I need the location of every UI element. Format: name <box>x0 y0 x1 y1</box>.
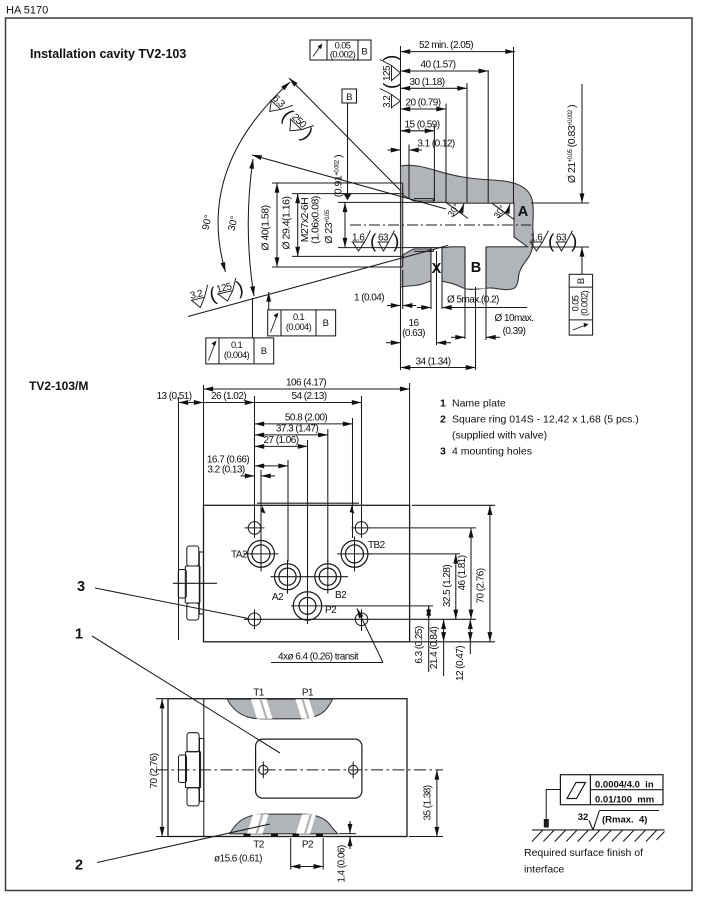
svg-text:B: B <box>361 47 367 58</box>
svg-text:30 (1.18): 30 (1.18) <box>409 77 444 88</box>
svg-text:P1: P1 <box>302 688 314 699</box>
svg-text:Ø 23+0.05: Ø 23+0.05 <box>323 209 335 244</box>
svg-text:0.1: 0.1 <box>231 340 243 350</box>
svg-text:70 (2.76): 70 (2.76) <box>476 568 487 603</box>
svg-text:20 (0.79): 20 (0.79) <box>405 98 440 109</box>
svg-text:106 (4.17): 106 (4.17) <box>286 378 326 389</box>
svg-text:0.1: 0.1 <box>293 312 305 322</box>
svg-text:12 (0.47): 12 (0.47) <box>455 646 466 681</box>
svg-text:3: 3 <box>77 579 85 595</box>
svg-text:1.4 (0.06): 1.4 (0.06) <box>337 845 348 883</box>
svg-text:32: 32 <box>578 812 589 823</box>
svg-text:3.2 (0.13): 3.2 (0.13) <box>207 464 245 475</box>
svg-text:54 (2.13): 54 (2.13) <box>291 391 326 402</box>
svg-text:6.3 (0.25): 6.3 (0.25) <box>414 626 425 664</box>
svg-text:B: B <box>471 260 481 276</box>
svg-text:3: 3 <box>440 446 446 458</box>
svg-text:Ø 5max.(0.2): Ø 5max.(0.2) <box>447 295 499 306</box>
svg-text:26 (1.02): 26 (1.02) <box>211 391 246 402</box>
svg-text:T1: T1 <box>253 688 265 699</box>
svg-text:(0.91+0.002 ): (0.91+0.002 ) <box>333 155 345 197</box>
svg-text:(0.002): (0.002) <box>580 290 590 316</box>
svg-text:3.1 (0.12): 3.1 (0.12) <box>417 139 455 150</box>
svg-text:B: B <box>346 92 352 103</box>
svg-text:TB2: TB2 <box>368 540 386 551</box>
svg-text:TV2-103/M: TV2-103/M <box>29 379 88 393</box>
svg-text:Ø 40(1.58): Ø 40(1.58) <box>260 205 272 250</box>
svg-text:): ) <box>235 278 246 300</box>
svg-text:interface: interface <box>524 864 564 876</box>
svg-text:T2: T2 <box>253 840 265 851</box>
svg-text:Installation cavity TV2-103: Installation cavity TV2-103 <box>30 47 186 61</box>
svg-text:(Rmax. 4): (Rmax. 4) <box>602 815 647 826</box>
svg-text:(: ( <box>381 82 402 89</box>
svg-text:0.01/100 mm: 0.01/100 mm <box>595 795 654 806</box>
svg-text:A: A <box>518 204 529 220</box>
svg-text:Ø 21+0.05 (0.83+0.002 ): Ø 21+0.05 (0.83+0.002 ) <box>566 105 578 183</box>
svg-text:): ) <box>393 232 399 253</box>
svg-text:B: B <box>576 278 587 284</box>
svg-text:2: 2 <box>440 414 446 426</box>
svg-text:52 min. (2.05): 52 min. (2.05) <box>419 40 473 51</box>
svg-text:Square ring 014S - 12,42 x 1,6: Square ring 014S - 12,42 x 1,68 (5 pcs.) <box>452 414 639 426</box>
svg-text:32.5 (1.28): 32.5 (1.28) <box>442 565 453 608</box>
svg-text:(0.63): (0.63) <box>402 328 425 339</box>
svg-text:70 (2.76): 70 (2.76) <box>149 753 160 788</box>
svg-text:Name plate: Name plate <box>452 398 506 410</box>
svg-text:1: 1 <box>440 398 446 410</box>
svg-text:P2: P2 <box>325 605 337 616</box>
svg-text:46 (1.81): 46 (1.81) <box>457 555 468 590</box>
svg-text:ø15.6 (0.61): ø15.6 (0.61) <box>214 854 262 865</box>
svg-text:(1.06x0.08): (1.06x0.08) <box>310 196 322 244</box>
svg-text:(0.39): (0.39) <box>503 326 526 337</box>
svg-text:HA 5170: HA 5170 <box>6 5 48 17</box>
svg-text:1 (0.04): 1 (0.04) <box>354 293 384 304</box>
svg-text:Ø 29.4(1.16): Ø 29.4(1.16) <box>281 197 293 250</box>
svg-text:35 (1.38): 35 (1.38) <box>423 785 434 820</box>
svg-text:30°: 30° <box>492 203 508 220</box>
svg-text:4xø 6.4 (0.26) transit: 4xø 6.4 (0.26) transit <box>278 652 359 663</box>
svg-text:0.0004/4.0 in: 0.0004/4.0 in <box>595 780 654 791</box>
svg-text:(0.004): (0.004) <box>286 322 312 332</box>
svg-text:34 (1.34): 34 (1.34) <box>415 357 450 368</box>
svg-text:30°: 30° <box>227 215 241 232</box>
svg-text:(: ( <box>548 232 555 253</box>
svg-text:X: X <box>432 261 442 277</box>
svg-text:Required surface finish of: Required surface finish of <box>524 847 643 859</box>
svg-text:13 (0.51): 13 (0.51) <box>156 391 191 402</box>
svg-text:B: B <box>323 318 329 329</box>
svg-text:): ) <box>381 55 402 61</box>
svg-text:A2: A2 <box>272 592 284 603</box>
svg-text:50.8 (2.00): 50.8 (2.00) <box>285 412 328 423</box>
svg-text:B2: B2 <box>335 590 347 601</box>
svg-text:90°: 90° <box>201 214 215 231</box>
svg-text:37.3 (1.47): 37.3 (1.47) <box>276 423 319 434</box>
svg-text:Ø 10max.: Ø 10max. <box>495 313 534 324</box>
svg-text:(: ( <box>370 232 377 253</box>
svg-text:(0.002): (0.002) <box>330 50 356 60</box>
svg-text:): ) <box>571 232 577 253</box>
svg-text:27 (1.06): 27 (1.06) <box>263 435 298 446</box>
svg-text:(supplied with valve): (supplied with valve) <box>452 430 547 442</box>
svg-text:(0.004): (0.004) <box>224 350 250 360</box>
svg-text:40 (1.57): 40 (1.57) <box>420 60 455 71</box>
svg-text:P2: P2 <box>302 840 314 851</box>
svg-text:3.2: 3.2 <box>189 288 204 302</box>
svg-text:4 mounting holes: 4 mounting holes <box>452 446 532 458</box>
svg-text:TA2: TA2 <box>231 550 248 561</box>
svg-text:B: B <box>261 346 267 357</box>
svg-text:1: 1 <box>75 627 83 643</box>
svg-text:21.4 (0.84): 21.4 (0.84) <box>429 627 440 670</box>
svg-text:2: 2 <box>75 858 83 874</box>
